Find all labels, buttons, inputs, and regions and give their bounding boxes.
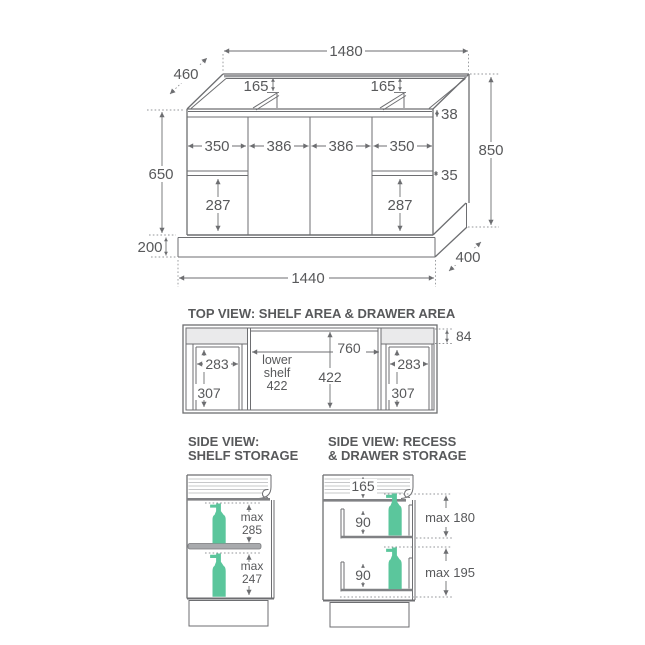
dim-cabinet-height: 650 xyxy=(148,166,173,183)
dim-overall-height: 850 xyxy=(478,142,503,159)
dim-upper-drawer-height: 90 xyxy=(355,514,371,530)
dim-recess-band-depth: 84 xyxy=(456,328,472,344)
dim-shelf-upper-max-value: 285 xyxy=(242,523,262,537)
dim-drawer-left: 287 xyxy=(205,197,230,214)
dim-right-drawer-width: 283 xyxy=(397,356,421,372)
dim-lower-drawer-height: 90 xyxy=(355,567,371,583)
dim-right-drawer-depth: 307 xyxy=(391,385,415,401)
lower-shelf-label-line2: shelf xyxy=(264,366,291,380)
labels: 1480 460 165 165 38 350 386 386 350 35 2… xyxy=(137,43,503,586)
side-shelf-title-line2: SHELF STORAGE xyxy=(188,448,299,463)
vanity-dimension-diagram: 1480 460 165 165 38 350 386 386 350 35 2… xyxy=(0,0,645,645)
bottle-icon xyxy=(210,554,226,597)
dim-recess-left: 165 xyxy=(243,78,268,95)
side-shelf-title-line1: SIDE VIEW: xyxy=(188,434,259,449)
dim-drawer-right: 287 xyxy=(387,197,412,214)
lower-shelf-label-line1: lower xyxy=(262,353,292,367)
dim-drawer-upper-max: max 180 xyxy=(425,510,475,525)
dim-shelf-width: 760 xyxy=(337,340,361,356)
dim-door-width-1: 350 xyxy=(204,138,229,155)
dim-base-width: 1440 xyxy=(291,270,324,287)
dim-shelf-lower-max-value: 247 xyxy=(242,572,262,586)
dim-top-width: 1480 xyxy=(329,43,362,60)
dim-top-rail-thickness: 38 xyxy=(441,106,458,123)
dim-shelf-upper-max-word: max xyxy=(241,510,264,524)
lower-shelf-label-line3: 422 xyxy=(267,379,288,393)
dim-recess-depth-side: 165 xyxy=(351,478,375,494)
dim-door-width-3: 386 xyxy=(328,138,353,155)
dim-shelf-lower-max-word: max xyxy=(241,559,264,573)
dim-left-drawer-width: 283 xyxy=(205,356,229,372)
dim-shelf-depth: 422 xyxy=(318,369,342,385)
dim-door-width-2: 386 xyxy=(266,138,291,155)
dim-kick-height: 200 xyxy=(137,239,162,256)
dim-left-drawer-depth: 307 xyxy=(197,385,221,401)
dim-top-depth: 460 xyxy=(173,66,198,83)
dim-door-width-4: 350 xyxy=(389,138,414,155)
dim-drawer-lower-max: max 195 xyxy=(425,565,475,580)
diagram-canvas: 1480 460 165 165 38 350 386 386 350 35 2… xyxy=(0,0,645,645)
dim-recess-right: 165 xyxy=(370,78,395,95)
top-view-title: TOP VIEW: SHELF AREA & DRAWER AREA xyxy=(188,306,456,321)
side-view-shelf-lines xyxy=(187,475,274,626)
dim-base-depth: 400 xyxy=(455,249,480,266)
side-drawer-title-line1: SIDE VIEW: RECESS xyxy=(328,434,457,449)
bottle-icon xyxy=(386,548,402,590)
side-drawer-title-line2: & DRAWER STORAGE xyxy=(328,448,467,463)
isometric-cabinet-lines xyxy=(178,74,469,257)
bottle-icon xyxy=(210,504,226,544)
dim-drawer-gap: 35 xyxy=(441,167,458,184)
